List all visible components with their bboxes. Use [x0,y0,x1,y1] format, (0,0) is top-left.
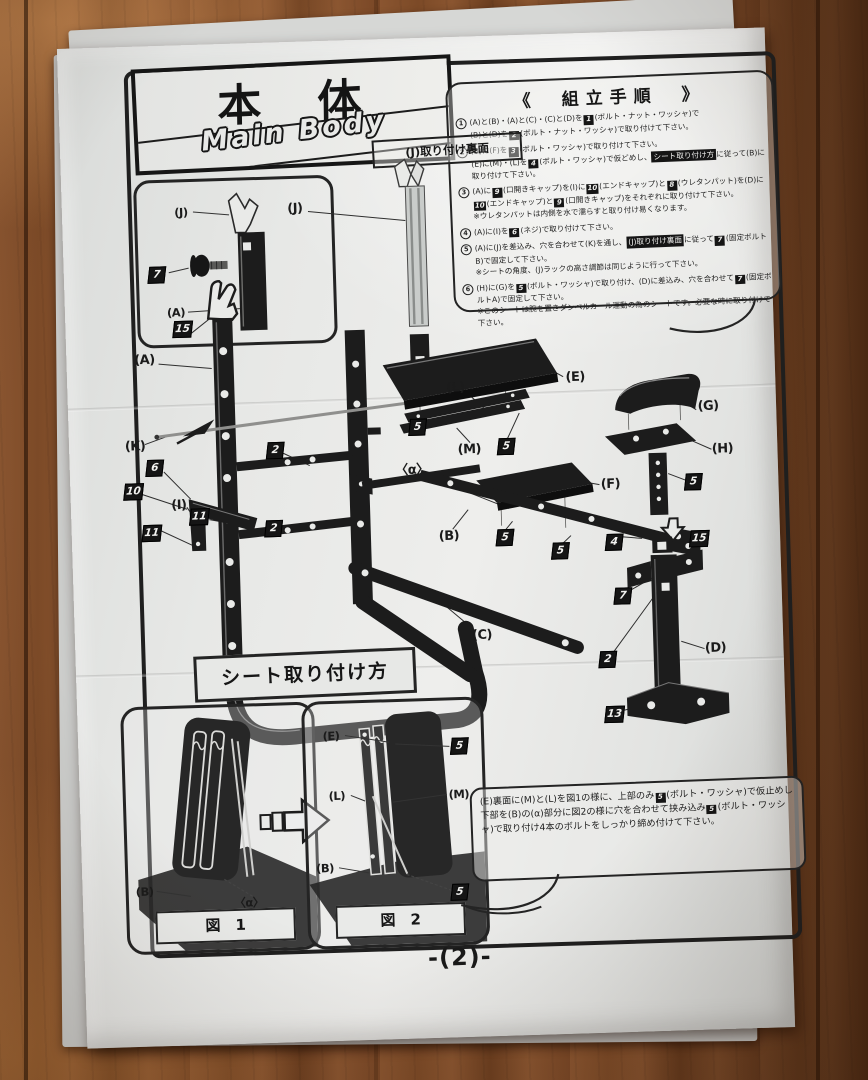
part-number-badge: 6 [145,459,164,477]
figure-2-panel: 図 2 (E)(L)(M)(B)55 [301,696,490,949]
seat-install-heading: シート取り付け方 [193,647,417,703]
part-callout: (G) [697,399,719,415]
part-callout: 〈α〉 [395,458,429,478]
h-bracket-shape [605,423,699,517]
manual-page: 本 体 Main Body 《 組立手順 》 1(A)と(B)・(A)と(C)・… [57,27,795,1048]
g-pad-shape [614,373,701,414]
part-number-badge: 7 [613,587,632,605]
part-number-badge: 5 [408,418,427,436]
part-callout: (C) [472,628,492,644]
part-number-badge: 5 [450,737,469,755]
part-callout: (H) [712,441,734,457]
part-number-badge: 15 [172,321,192,339]
part-callout: (F) [601,477,621,493]
part-number-badge: 2 [266,442,285,460]
seat-install-note-text: (E)裏面に(M)と(L)を図1の様に、上部のみ5(ボルト・ワッシャ)で仮止めし… [480,784,795,837]
j-bar-shape [394,159,430,382]
part-callout: (K) [125,439,146,455]
part-number-badge: 11 [141,525,161,543]
part-number-badge: 13 [604,706,624,724]
e-pad-shape [382,338,560,434]
part-number-badge: 5 [496,529,515,547]
part-number-badge: 11 [189,508,209,526]
part-callout: 〈α〉 [234,894,264,911]
part-number-badge: 5 [497,438,516,456]
part-callout: (J) [287,201,303,216]
figure-2-caption: 図 2 [335,902,467,939]
part-number-badge: 10 [123,483,143,501]
part-number-badge: 5 [551,542,570,560]
part-number-badge: 4 [605,533,624,551]
photo-scene: 本 体 Main Body 《 組立手順 》 1(A)と(B)・(A)と(C)・… [0,0,868,1080]
part-callout: (B) [316,861,334,876]
part-number-badge: 2 [598,651,617,669]
part-callout: (M) [448,787,469,802]
part-number-badge: 2 [264,520,283,538]
part-callout: (E) [565,370,585,386]
part-callout: (I) [171,498,187,513]
part-number-badge: 5 [450,883,469,901]
part-callout: (E) [322,729,339,744]
part-callout: (L) [446,380,465,396]
inline-part-number: 5 [707,804,717,814]
part-callout: (D) [705,640,727,656]
part-callout: (B) [439,528,460,544]
page-number: -(2)- [384,941,535,974]
part-number-badge: 5 [684,473,703,491]
inline-part-number: 5 [655,793,665,803]
part-number-badge: 15 [689,530,709,548]
d-post-shape [622,535,730,726]
part-callout: (L) [328,789,345,803]
figure-1-caption: 図 1 [156,907,296,944]
inline-part-number: 1 [584,115,594,125]
part-callout: (A) [134,353,155,369]
part-callout: (B) [136,884,154,899]
part-callout: (M) [457,442,481,458]
seat-install-note: (E)裏面に(M)と(L)を図1の様に、上部のみ5(ボルト・ワッシャ)で仮止めし… [469,775,806,881]
